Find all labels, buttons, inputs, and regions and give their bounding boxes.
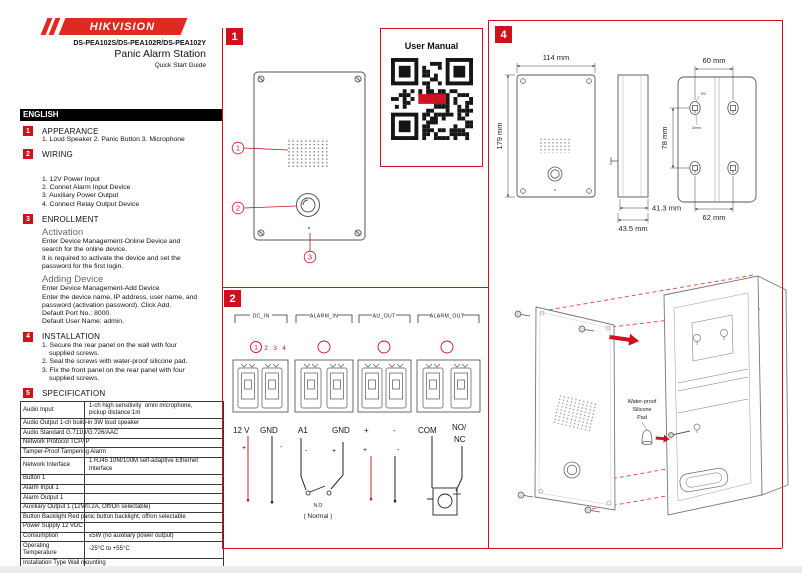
note-r2: R2 xyxy=(701,91,707,96)
spec-value: 1-ch high sensitivity omni microphone, p… xyxy=(87,402,224,419)
installation-items: 1. Secure the rear panel on the wall wit… xyxy=(20,342,222,383)
spec-value xyxy=(87,448,224,458)
spec-row: Power Supply 12 VDC xyxy=(21,522,224,532)
qr-code xyxy=(391,58,473,140)
group-label-dcin: DC_IN xyxy=(252,314,269,320)
section-wiring-heading: 2 WIRING xyxy=(20,149,222,159)
pad-label-line1: Water-proof xyxy=(628,399,657,405)
wiring-items: 1. 12V Power Input2. Connet Alarm Input … xyxy=(42,159,222,209)
group-label-alarmin: ALARM_IN xyxy=(310,314,338,320)
side-view xyxy=(611,75,648,197)
dim-width: 114 mm xyxy=(543,53,570,62)
spec-row: Audio Standard G.711U/G.726/AAC xyxy=(21,429,224,439)
switch-label: N.O xyxy=(314,503,323,509)
section-number-badge: 4 xyxy=(23,332,33,342)
wiring-callout-circles xyxy=(251,341,454,353)
section-title: APPEARANCE xyxy=(42,127,99,136)
depth-dimension-lines xyxy=(618,199,648,223)
adding-device-subheading: Adding Device xyxy=(42,274,222,285)
dim-depth-outer: 43.5 mm xyxy=(618,224,647,233)
pin-number-1: 1 xyxy=(254,345,258,352)
pin-number-4: 4 xyxy=(282,345,286,352)
spec-value xyxy=(87,474,224,484)
speaker-grille xyxy=(288,138,330,168)
spec-row: Button 1 xyxy=(21,474,224,484)
switch-sublabel: ( Normal ) xyxy=(304,513,333,520)
label-minus: - xyxy=(393,426,396,435)
polarity-plus: + xyxy=(332,448,336,455)
microphone-hole xyxy=(308,227,310,229)
pad-label-line2: Silicone xyxy=(632,407,651,413)
installation-item: 2. Seal the screws with water-proof sili… xyxy=(42,358,201,366)
pin-number-2: 2 xyxy=(264,345,268,352)
frame-bottom-line xyxy=(222,548,782,549)
dim-hole-top: 60 mm xyxy=(703,56,726,65)
front-panel-3d xyxy=(535,307,615,510)
callout-1: 1 xyxy=(236,144,240,153)
wiring-item: 4. Connect Relay Output Device xyxy=(42,201,222,209)
user-manual-box: User Manual xyxy=(380,28,483,167)
spec-label: Network Interface xyxy=(21,457,88,474)
spec-row: Consumption ≤5W (no auxiliary power outp… xyxy=(21,532,224,542)
column-divider-line xyxy=(222,28,223,548)
spec-label: Button Backlight Red panic button backli… xyxy=(21,513,88,523)
label-nc: NC xyxy=(454,435,466,444)
dim-hole-vertical: 78 mm xyxy=(660,127,669,150)
spec-value xyxy=(87,522,224,532)
spec-label: Tamper-Proof Tampering Alarm xyxy=(21,448,88,458)
spec-label: Button 1 xyxy=(21,474,88,484)
spec-value: ≤5W (no auxiliary power output) xyxy=(87,532,224,542)
spec-row: Audio Input 1-ch high sensitivity omni m… xyxy=(21,402,224,419)
spec-label: Consumption xyxy=(21,532,88,542)
polarity-plus: + xyxy=(242,445,246,452)
section-enrollment-heading: 3 ENROLLMENT xyxy=(20,214,222,224)
callout-3: 3 xyxy=(308,253,312,262)
spec-value xyxy=(87,438,224,448)
spec-label: Auxiliary Output 1 (12V/0.2A, Off/On sel… xyxy=(21,503,88,513)
label-a1: A1 xyxy=(298,426,308,435)
device-front-diagram: 1 2 3 xyxy=(225,50,385,270)
panel-divider-line xyxy=(222,287,488,288)
section-installation-heading: 4 INSTALLATION xyxy=(20,332,222,342)
column-divider-line xyxy=(488,20,489,548)
rear-panel-view xyxy=(678,77,756,202)
spec-row: Operating Temperature -25°C to +55°C xyxy=(21,542,224,559)
label-12v: 12 V xyxy=(233,426,250,435)
spec-label: Alarm Input 1 xyxy=(21,484,88,494)
label-no: NO/ xyxy=(452,423,467,432)
callout-2: 2 xyxy=(236,204,240,213)
group-label-auout: AU_OUT xyxy=(373,314,396,320)
quick-start-guide-page: HIKVISION DS-PEA102S/DS-PEA102R/DS-PEA10… xyxy=(0,0,802,573)
spec-row: Network Protocol TCP/IP xyxy=(21,438,224,448)
section-specification-heading: 5 SPECIFICATION xyxy=(20,388,222,398)
language-bar: ENGLISH xyxy=(20,109,222,121)
model-numbers: DS-PEA102S/DS-PEA102R/DS-PEA102Y xyxy=(20,40,206,47)
alarm-in-switch xyxy=(301,438,343,495)
activation-text: Enter Device Management-Online Device an… xyxy=(42,238,222,271)
dim-depth-inner: 41.3 mm xyxy=(652,204,681,213)
wiring-item: 3. Auxiliary Power Output xyxy=(42,192,222,200)
spec-label: Audio Input xyxy=(21,402,88,419)
left-column: HIKVISION DS-PEA102S/DS-PEA102R/DS-PEA10… xyxy=(20,14,222,573)
footer-strip xyxy=(0,566,802,573)
dim-hole-bottom: 62 mm xyxy=(703,213,726,222)
section-title: INSTALLATION xyxy=(42,332,100,341)
spec-row: Alarm Input 1 xyxy=(21,484,224,494)
spec-label: Alarm Output 1 xyxy=(21,494,88,504)
spec-value xyxy=(87,484,224,494)
wiring-diagram: DC_IN ALARM_IN AU_OUT ALARM_OUT 1 2 3 4 xyxy=(225,300,488,548)
spec-label: Operating Temperature xyxy=(21,542,88,559)
spec-value: -25°C to +55°C xyxy=(87,542,224,559)
guide-subtitle: Quick Start Guide xyxy=(20,62,206,69)
polarity-minus: - xyxy=(280,444,283,451)
speaker-grille xyxy=(538,137,572,153)
note-2mm: 2mm xyxy=(692,125,702,130)
spec-value xyxy=(87,494,224,504)
polarity-plus: + xyxy=(363,447,367,454)
dimension-diagram: 114 mm 179 mm 41.3 mm 43.5 mm xyxy=(492,40,792,280)
brand-name: HIKVISION xyxy=(90,20,155,32)
label-com: COM xyxy=(418,426,437,435)
section-title: SPECIFICATION xyxy=(42,389,105,398)
dim-height: 179 mm xyxy=(495,122,504,149)
rear-box-3d xyxy=(664,276,788,515)
section-appearance-heading: 1 APPEARANCE xyxy=(20,126,222,136)
pad-label-line3: Pad xyxy=(637,415,647,421)
label-gnd: GND xyxy=(260,426,278,435)
silicone-pad xyxy=(642,430,652,445)
spec-row: Audio Output 1-ch build-in 3W loud speak… xyxy=(21,419,224,429)
spec-label: Audio Output 1-ch build-in 3W loud speak… xyxy=(21,419,88,429)
label-plus: + xyxy=(364,426,369,435)
table-column-divider xyxy=(84,401,85,573)
section-title: WIRING xyxy=(42,150,73,159)
spec-label: Network Protocol TCP/IP xyxy=(21,438,88,448)
activation-subheading: Activation xyxy=(42,227,222,238)
panel1-number-badge: 1 xyxy=(226,28,243,45)
installation-item: 3. Fix the front panel on the rear panel… xyxy=(42,367,201,384)
aux-out-wires xyxy=(370,456,396,502)
appearance-items: 1. Loud Speaker 2. Panic Button 3. Micro… xyxy=(42,136,222,144)
polarity-minus: - xyxy=(305,448,308,455)
label-gnd2: GND xyxy=(332,426,350,435)
section-number-badge: 5 xyxy=(23,388,33,398)
spec-row: Auxiliary Output 1 (12V/0.2A, Off/On sel… xyxy=(21,503,224,513)
polarity-minus: - xyxy=(397,447,400,454)
section-title: ENROLLMENT xyxy=(42,215,99,224)
spec-row: Network Interface 1 RJ45 10M/100M self-a… xyxy=(21,457,224,474)
adding-device-text: Enter Device Management-Add Device Enter… xyxy=(42,285,222,326)
product-title: Panic Alarm Station xyxy=(20,48,206,60)
spec-label: Power Supply 12 VDC xyxy=(21,522,88,532)
power-wires xyxy=(247,436,273,503)
frame-top-line xyxy=(488,20,782,21)
spec-row: Tamper-Proof Tampering Alarm xyxy=(21,448,224,458)
installation-diagram: Water-proof Silicone Pad xyxy=(492,263,792,548)
specification-table: Audio Input 1-ch high sensitivity omni m… xyxy=(20,401,220,573)
section-number-badge: 1 xyxy=(23,126,33,136)
spec-value: 1 RJ45 10M/100M self-adaptive Ethernet I… xyxy=(87,457,224,474)
logo-wordmark: HIKVISION xyxy=(59,18,188,35)
section-number-badge: 2 xyxy=(23,149,33,159)
relay-output-device xyxy=(427,436,462,515)
spec-label: Audio Standard G.711U/G.726/AAC xyxy=(21,429,88,439)
wiring-item: 2. Connet Alarm Input Device xyxy=(42,184,222,192)
spec-row: Alarm Output 1 xyxy=(21,494,224,504)
section-number-badge: 3 xyxy=(23,214,33,224)
group-label-alarmout: ALARM_OUT xyxy=(430,314,465,320)
wiring-item: 1. 12V Power Input xyxy=(42,176,222,184)
user-manual-label: User Manual xyxy=(381,41,482,51)
installation-item: 1. Secure the rear panel on the wall wit… xyxy=(42,342,201,359)
hikvision-logo: HIKVISION xyxy=(44,17,222,35)
front-view xyxy=(517,75,595,197)
spec-row: Button Backlight Red panic button backli… xyxy=(21,513,224,523)
pin-number-3: 3 xyxy=(273,345,277,352)
